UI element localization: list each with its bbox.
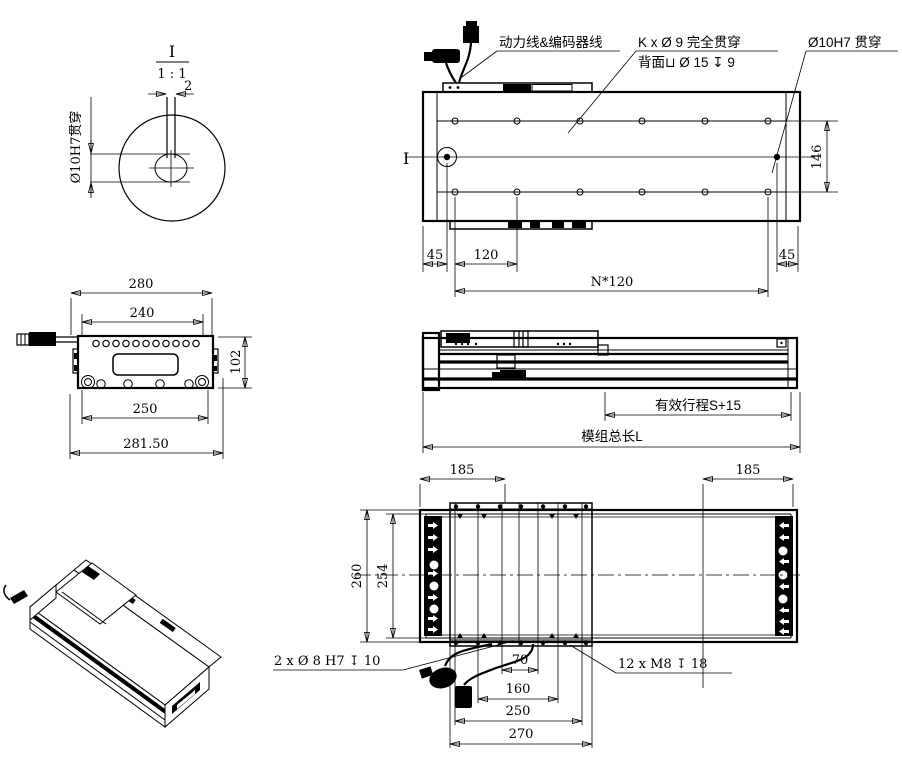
left-end-cap [424,516,442,636]
dim-120: 120 [474,248,499,263]
bottom-view-dimensions: 185 185 260 254 70 160 250 [350,463,793,748]
dim-n120: N*120 [591,275,634,290]
dim-stroke-label: 有效行程S+15 [655,398,741,413]
dim-281-50: 281.50 [123,437,169,452]
dim-240: 240 [130,306,155,321]
square-plug [455,686,472,708]
dim-185-left: 185 [450,463,475,478]
right-end-cap [775,516,793,636]
plug-tip [424,52,433,61]
carriage-bolts-top [454,504,588,508]
top-view: I 动力线&编码器线 K x Ø 9 完全贯穿 背面⊔ Ø 15 ↧ 9 Ø10… [403,21,898,297]
thread-callout: 12 x M8 ↧ 18 [618,657,707,672]
carriage-triangle-marks [457,514,579,638]
end-view: 280 240 250 281.50 102 [17,277,252,459]
round-plug [427,664,460,692]
dim-254: 254 [376,564,391,589]
iso-connector [10,590,28,604]
top-view-body [423,92,800,221]
dowel-callout-bottom: 2 x Ø 8 H7 ↧ 10 [274,654,380,669]
dim-45-right: 45 [779,248,796,263]
drawing-sheet: I 1 : 1 2 Ø10H7贯穿 [0,0,902,767]
motor-end-block [423,333,439,390]
cable-connectors [424,21,479,83]
end-view-bottom-holes [82,376,209,389]
dim-70: 70 [512,653,529,668]
cable-1 [446,63,456,83]
end-view-top-holes [93,340,199,346]
square-plug [463,26,479,43]
detail-scale: 1 : 1 [157,67,186,82]
dim-250-end: 250 [133,402,158,417]
cable-2 [459,43,471,83]
dim-185-right: 185 [736,463,761,478]
dowel-hole-left [444,154,450,160]
round-plug [432,49,460,63]
detail-hole-label: Ø10H7贯穿 [68,111,84,184]
dim-160: 160 [506,682,531,697]
isometric-view [4,560,221,727]
dim-270: 270 [509,727,534,742]
side-view: 有效行程S+15 模组总长L [423,331,800,453]
cable-callout: 动力线&编码器线 [499,35,603,50]
dim-45-left: 45 [427,248,444,263]
engineering-drawing: I 1 : 1 2 Ø10H7贯穿 [0,0,902,767]
top-view-dimensions: 45 120 45 N*120 146 [423,121,838,297]
side-view-dimensions: 有效行程S+15 模组总长L [423,392,800,453]
bottom-view-body [420,510,797,642]
dim-260: 260 [350,564,365,589]
end-view-dimensions: 280 240 250 281.50 102 [70,277,252,459]
detail-view: I 1 : 1 2 Ø10H7贯穿 [68,42,225,221]
carriage-plate [450,503,592,646]
slot-width-dim-text: 2 [184,79,192,94]
carriage-bolt-lines [455,503,582,646]
detail-title: I [169,42,175,61]
dim-total-length-label: 模组总长L [581,429,643,444]
through-hole-callout-line2: 背面⊔ Ø 15 ↧ 9 [638,55,735,70]
iso-cable [4,585,10,600]
dim-250-bottom: 250 [506,704,531,719]
center-slot [113,354,178,375]
end-view-connector [17,332,78,346]
bottom-view: 2 x Ø 8 H7 ↧ 10 12 x M8 ↧ 18 185 185 260… [273,463,800,748]
dim-146: 146 [810,145,825,170]
dim-280: 280 [129,277,154,292]
dim-102: 102 [229,350,244,375]
dowel-callout: Ø10H7 贯穿 [808,35,882,50]
through-hole-callout-line1: K x Ø 9 完全贯穿 [638,34,741,50]
section-marker: I [403,149,409,168]
